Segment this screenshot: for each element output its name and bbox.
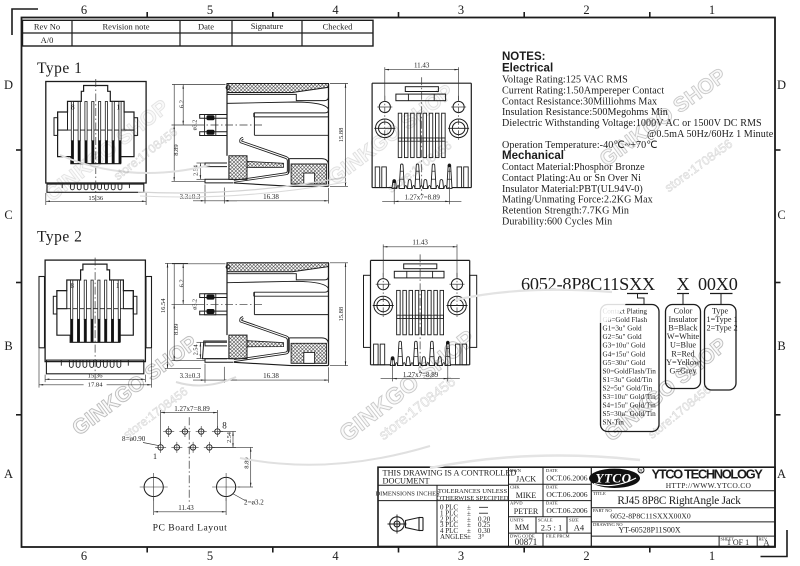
svg-text:15.36: 15.36 xyxy=(88,195,104,202)
svg-text:Rev No: Rev No xyxy=(34,22,60,32)
svg-text:6052-8P8C11SXXX00X0: 6052-8P8C11SXXX00X0 xyxy=(610,512,691,521)
svg-text:MIKE: MIKE xyxy=(516,491,537,500)
svg-text:1.27x7=8.89: 1.27x7=8.89 xyxy=(404,194,440,202)
svg-text:C: C xyxy=(777,208,785,222)
svg-text:G4=15u" Gold: G4=15u" Gold xyxy=(603,350,646,358)
svg-text:2: 2 xyxy=(583,3,589,17)
svg-text:HTTP://WWW.YTCO.CO: HTTP://WWW.YTCO.CO xyxy=(666,481,752,490)
svg-text:6: 6 xyxy=(81,549,87,563)
svg-text:2=Type 2: 2=Type 2 xyxy=(707,324,738,333)
svg-text:15.88: 15.88 xyxy=(338,128,345,143)
svg-text:Retention Strength:7.7KG Min: Retention Strength:7.7KG Min xyxy=(502,206,629,217)
svg-text:Current Rating:1.50Ampereper C: Current Rating:1.50Ampereper Contact xyxy=(502,85,664,96)
svg-text:OCT.06.2006: OCT.06.2006 xyxy=(546,474,587,483)
svg-text:8: 8 xyxy=(71,104,75,112)
svg-text:±: ± xyxy=(467,533,471,541)
svg-text:CHK: CHK xyxy=(510,484,520,489)
svg-text:1 OF 1: 1 OF 1 xyxy=(727,538,749,547)
svg-text:D: D xyxy=(777,78,786,92)
svg-text:Mechanical: Mechanical xyxy=(502,150,564,162)
svg-text:OTHERWISE SPECIFIED: OTHERWISE SPECIFIED xyxy=(437,495,509,502)
svg-text:DOCUMENT: DOCUMENT xyxy=(383,477,430,486)
svg-text:00871: 00871 xyxy=(515,537,538,547)
svg-text:X: X xyxy=(677,274,690,294)
svg-text:1: 1 xyxy=(153,452,157,461)
svg-text:4: 4 xyxy=(332,3,339,17)
svg-text:S1=3u" Gold/Tin: S1=3u" Gold/Tin xyxy=(603,376,653,384)
svg-text:UNITS: UNITS xyxy=(510,518,524,523)
svg-text:Revision note: Revision note xyxy=(103,22,150,32)
svg-text:DATE: DATE xyxy=(546,484,558,489)
svg-text:Insulation Resistance:500Megoh: Insulation Resistance:500Megohms Min xyxy=(502,107,668,118)
svg-text:YTCO TECHNOLOGY: YTCO TECHNOLOGY xyxy=(651,467,763,482)
svg-text:Signature: Signature xyxy=(251,21,284,31)
svg-text:MM: MM xyxy=(515,523,529,532)
svg-text:YT-60528P11S00X: YT-60528P11S00X xyxy=(618,525,680,534)
svg-text:OCT.06.2006: OCT.06.2006 xyxy=(546,506,587,515)
svg-text:PC Board Layout: PC Board Layout xyxy=(153,523,228,534)
svg-text:A: A xyxy=(763,538,770,548)
svg-text:A: A xyxy=(777,467,786,481)
svg-text:8: 8 xyxy=(222,421,227,431)
svg-text:Type 2: Type 2 xyxy=(37,229,82,246)
svg-text:NOTES:: NOTES: xyxy=(502,51,545,63)
svg-text:DIMENSIONS INCHES: DIMENSIONS INCHES xyxy=(375,491,440,498)
svg-text:G3=10u" Gold: G3=10u" Gold xyxy=(603,342,646,350)
svg-text:15.36: 15.36 xyxy=(88,373,104,380)
svg-text:3: 3 xyxy=(458,549,464,563)
svg-text:11.43: 11.43 xyxy=(414,61,430,69)
svg-text:8: 8 xyxy=(70,282,74,290)
svg-text:DATE: DATE xyxy=(546,501,558,506)
svg-text:16.38: 16.38 xyxy=(263,193,279,201)
svg-text:Checked: Checked xyxy=(323,22,353,32)
svg-text:3: 3 xyxy=(458,3,464,17)
svg-text:Contact Resistance:30Milliohms: Contact Resistance:30Milliohms Max xyxy=(502,96,657,107)
svg-text:1: 1 xyxy=(117,104,121,112)
svg-text:C: C xyxy=(4,208,12,222)
svg-text:Electrical: Electrical xyxy=(502,63,553,75)
svg-text:PETER: PETER xyxy=(514,507,539,516)
svg-text:1: 1 xyxy=(709,549,715,563)
svg-text:1: 1 xyxy=(116,282,120,290)
svg-text:8.89: 8.89 xyxy=(173,324,180,335)
svg-text:S0=GoldFlash/Tin: S0=GoldFlash/Tin xyxy=(603,367,657,375)
svg-text:Type 1: Type 1 xyxy=(37,60,82,77)
svg-text:B: B xyxy=(777,339,785,353)
svg-text:6: 6 xyxy=(81,3,87,17)
svg-text:Contact Plating:Au or Sn Over: Contact Plating:Au or Sn Over Ni xyxy=(502,173,641,184)
svg-text:15.88: 15.88 xyxy=(338,307,345,322)
svg-text:00X0: 00X0 xyxy=(698,274,738,294)
svg-text:FILE PRCM: FILE PRCM xyxy=(546,534,570,539)
svg-text:YTCO: YTCO xyxy=(596,471,632,486)
svg-text:1.27x7=8.89: 1.27x7=8.89 xyxy=(174,405,210,413)
svg-text:3.3±0.3: 3.3±0.3 xyxy=(180,373,201,380)
svg-text:JACK: JACK xyxy=(516,475,536,484)
svg-text:Date: Date xyxy=(198,22,214,32)
svg-text:D: D xyxy=(4,78,13,92)
svg-text:Durability:600 Cycles Min: Durability:600 Cycles Min xyxy=(502,217,612,228)
svg-text:Mating/Unmating Force:2.2KG Ma: Mating/Unmating Force:2.2KG Max xyxy=(502,195,653,206)
svg-text:TOLERANCES UNLESS: TOLERANCES UNLESS xyxy=(438,488,508,495)
svg-text:G5=30u" Gold: G5=30u" Gold xyxy=(603,359,646,367)
svg-text:Insulator Material:PBT(UL94V-0: Insulator Material:PBT(UL94V-0) xyxy=(502,184,643,195)
svg-text:APVD: APVD xyxy=(510,501,523,506)
svg-text:6.2: 6.2 xyxy=(179,100,186,108)
svg-text:G1=3u" Gold: G1=3u" Gold xyxy=(603,325,643,333)
svg-text:DWN: DWN xyxy=(510,468,522,473)
svg-text:6.2: 6.2 xyxy=(179,279,186,287)
svg-text:2: 2 xyxy=(583,549,589,563)
svg-text:A/0: A/0 xyxy=(41,35,54,45)
svg-text:OCT.06.2006: OCT.06.2006 xyxy=(546,490,587,499)
svg-text:2=ø3.2: 2=ø3.2 xyxy=(244,499,264,507)
svg-text:1: 1 xyxy=(709,3,715,17)
svg-text:B: B xyxy=(4,339,12,353)
svg-text:Contact Material:Phosphor Bron: Contact Material:Phosphor Bronze xyxy=(502,162,645,173)
svg-text:A: A xyxy=(4,467,13,481)
svg-text:RJ45 8P8C RightAngle Jack: RJ45 8P8C RightAngle Jack xyxy=(617,495,741,507)
svg-text:5: 5 xyxy=(207,549,213,563)
svg-text:2.54: 2.54 xyxy=(226,432,233,443)
svg-text:11.43: 11.43 xyxy=(178,504,194,512)
svg-text:ANGLES: ANGLES xyxy=(440,533,468,541)
svg-text:16.54: 16.54 xyxy=(160,298,167,313)
svg-text:DATE: DATE xyxy=(546,468,558,473)
svg-text:3°: 3° xyxy=(478,533,485,541)
svg-text:8.89: 8.89 xyxy=(173,144,180,155)
svg-text:TITLE: TITLE xyxy=(593,491,606,496)
svg-text:16.38: 16.38 xyxy=(263,372,279,380)
svg-text:@0.5mA 50Hz/60Hz 1 Minute: @0.5mA 50Hz/60Hz 1 Minute xyxy=(647,129,774,140)
svg-text:4: 4 xyxy=(332,549,339,563)
svg-text:11.43: 11.43 xyxy=(412,239,428,247)
svg-text:A4: A4 xyxy=(574,523,585,533)
svg-text:G2=5u" Gold: G2=5u" Gold xyxy=(603,333,643,341)
svg-text:2.5 : 1: 2.5 : 1 xyxy=(541,523,563,533)
svg-text:Voltage Rating:125 VAC RMS: Voltage Rating:125 VAC RMS xyxy=(502,75,628,86)
svg-text:17.84: 17.84 xyxy=(88,381,104,388)
svg-text:5: 5 xyxy=(207,3,213,17)
